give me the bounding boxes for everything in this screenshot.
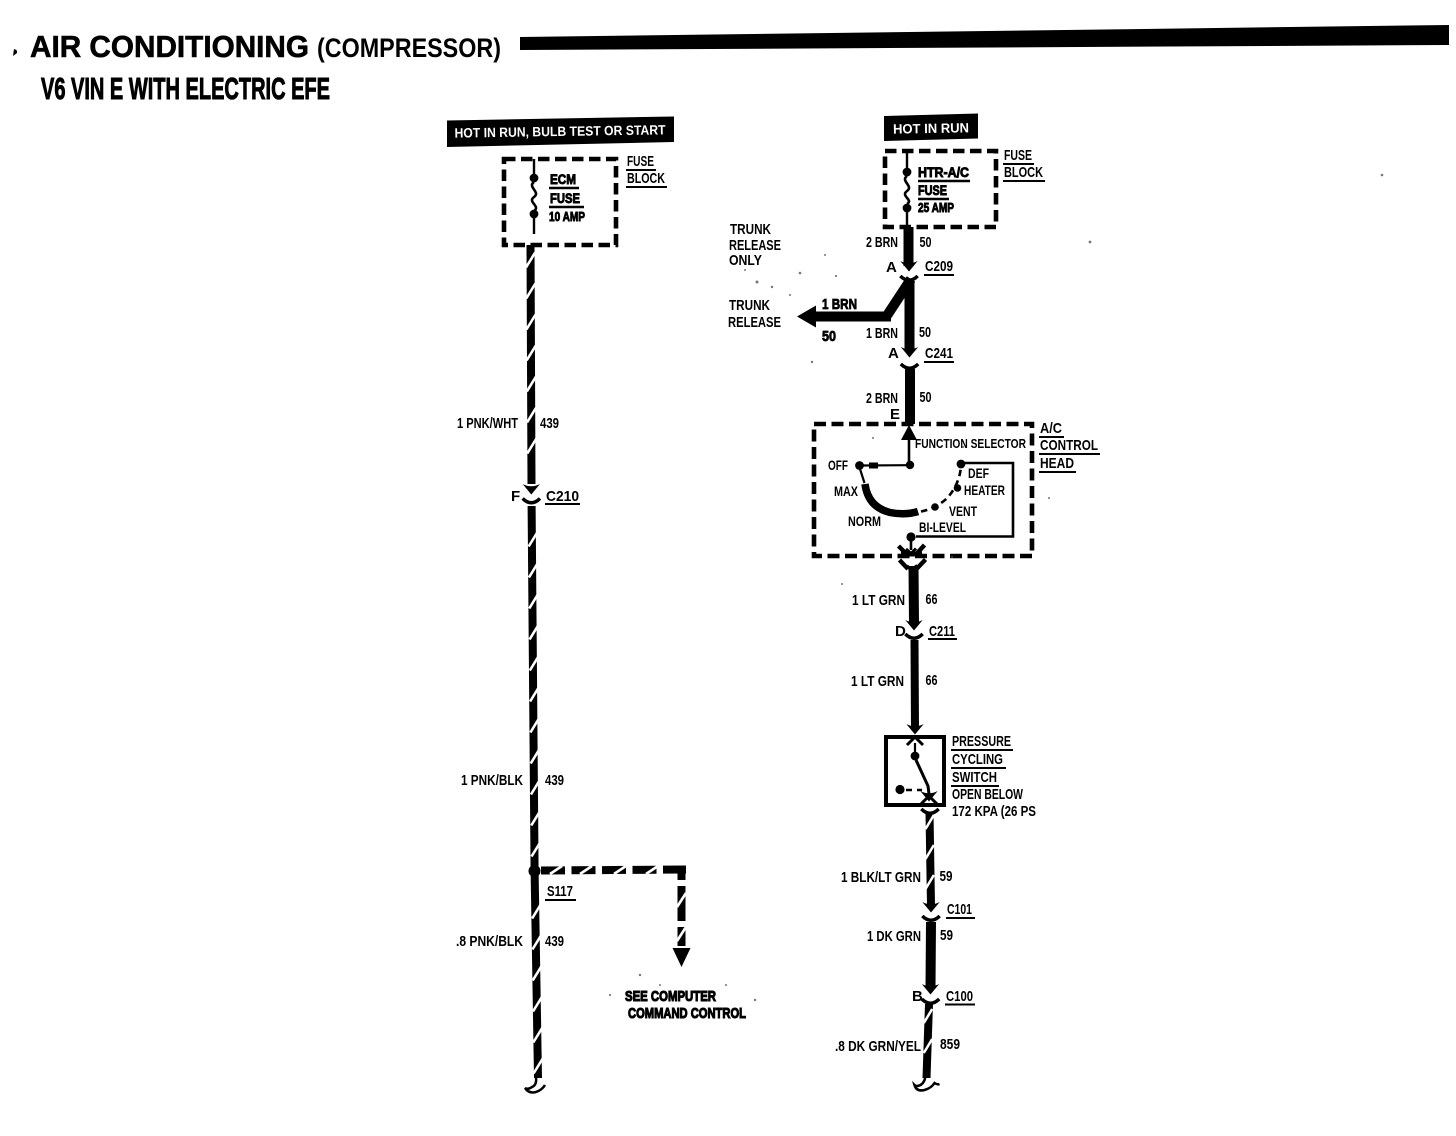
svg-text:C100: C100 [946, 988, 973, 1005]
svg-text:66: 66 [926, 591, 938, 608]
svg-text:10 AMP: 10 AMP [549, 209, 585, 224]
svg-text:1 PNK/BLK: 1 PNK/BLK [461, 772, 523, 789]
svg-text:E: E [890, 406, 900, 423]
svg-text:ECM: ECM [550, 171, 576, 187]
svg-text:VENT: VENT [949, 503, 977, 519]
svg-text:RELEASE: RELEASE [728, 314, 781, 331]
svg-text:C101: C101 [947, 901, 972, 918]
svg-text:PRESSURE: PRESSURE [952, 733, 1011, 750]
svg-text:FUSE: FUSE [1004, 147, 1032, 164]
svg-text:439: 439 [540, 415, 559, 432]
svg-text:859: 859 [940, 1036, 960, 1053]
svg-text:FUSE: FUSE [627, 153, 654, 170]
svg-text:SEE COMPUTER: SEE COMPUTER [625, 988, 716, 1005]
svg-text:HEATER: HEATER [964, 482, 1005, 498]
svg-text:2 BRN: 2 BRN [866, 234, 898, 251]
svg-text:50: 50 [920, 389, 932, 406]
svg-text:HEAD: HEAD [1040, 455, 1074, 472]
svg-text:AIR CONDITIONING: AIR CONDITIONING [30, 29, 309, 64]
svg-text:A: A [886, 259, 897, 276]
svg-text:HTR-A/C: HTR-A/C [918, 164, 969, 180]
svg-text:V6 VIN E WITH ELECTRIC EFE: V6 VIN E WITH ELECTRIC EFE [41, 71, 330, 106]
svg-text:66: 66 [926, 672, 938, 689]
svg-text:HOT IN RUN: HOT IN RUN [893, 120, 969, 136]
svg-text:1 PNK/WHT: 1 PNK/WHT [457, 415, 518, 432]
svg-text:ONLY: ONLY [729, 252, 762, 269]
svg-text:50: 50 [920, 234, 932, 251]
svg-text:2 BRN: 2 BRN [866, 390, 898, 407]
svg-text:50: 50 [919, 324, 931, 341]
svg-text:CONTROL: CONTROL [1040, 437, 1098, 454]
svg-text:25 AMP: 25 AMP [918, 200, 954, 215]
svg-text:DEF: DEF [968, 465, 989, 481]
svg-text:D: D [895, 623, 906, 640]
svg-text:439: 439 [545, 933, 564, 950]
svg-text:.8 DK GRN/YEL: .8 DK GRN/YEL [835, 1038, 921, 1055]
svg-text:59: 59 [940, 927, 953, 944]
svg-text:BLOCK: BLOCK [1004, 164, 1043, 181]
svg-text:OFF: OFF [828, 457, 848, 473]
svg-text:1 DK GRN: 1 DK GRN [867, 928, 921, 945]
svg-text:A: A [888, 345, 899, 362]
svg-text:COMMAND CONTROL: COMMAND CONTROL [628, 1005, 746, 1022]
svg-text:1 BRN: 1 BRN [866, 325, 898, 342]
svg-text:NORM: NORM [848, 513, 881, 529]
svg-text:FUSE: FUSE [918, 182, 947, 198]
svg-text:1 BLK/LT GRN: 1 BLK/LT GRN [841, 869, 921, 886]
svg-text:C211: C211 [929, 623, 955, 640]
svg-text:F: F [511, 488, 520, 505]
svg-text:172 KPA (26 PS: 172 KPA (26 PS [952, 803, 1036, 820]
svg-text:MAX: MAX [834, 483, 858, 499]
svg-text:.8 PNK/BLK: .8 PNK/BLK [456, 933, 523, 950]
svg-text:C209: C209 [925, 258, 953, 275]
svg-text:FUNCTION SELECTOR: FUNCTION SELECTOR [915, 436, 1026, 451]
svg-text:TRUNK: TRUNK [730, 221, 771, 238]
svg-text:(COMPRESSOR): (COMPRESSOR) [317, 33, 501, 63]
svg-text:A/C: A/C [1040, 420, 1062, 437]
svg-text:S117: S117 [547, 883, 573, 900]
svg-text:59: 59 [940, 868, 953, 885]
svg-text:C241: C241 [925, 345, 953, 362]
svg-text:439: 439 [545, 772, 564, 789]
svg-text:1 LT GRN: 1 LT GRN [852, 592, 905, 609]
svg-text:OPEN BELOW: OPEN BELOW [952, 786, 1024, 803]
svg-text:TRUNK: TRUNK [729, 297, 770, 314]
svg-text:BI-LEVEL: BI-LEVEL [919, 519, 966, 535]
svg-text:SWITCH: SWITCH [952, 769, 997, 786]
svg-text:1 BRN: 1 BRN [822, 296, 857, 313]
svg-text:50: 50 [822, 328, 836, 345]
svg-text:1 LT GRN: 1 LT GRN [851, 673, 904, 690]
svg-text:B: B [912, 988, 923, 1005]
svg-text:FUSE: FUSE [550, 190, 580, 206]
svg-text:BLOCK: BLOCK [627, 170, 665, 187]
svg-text:CYCLING: CYCLING [952, 751, 1003, 768]
svg-text:C210: C210 [546, 488, 579, 505]
